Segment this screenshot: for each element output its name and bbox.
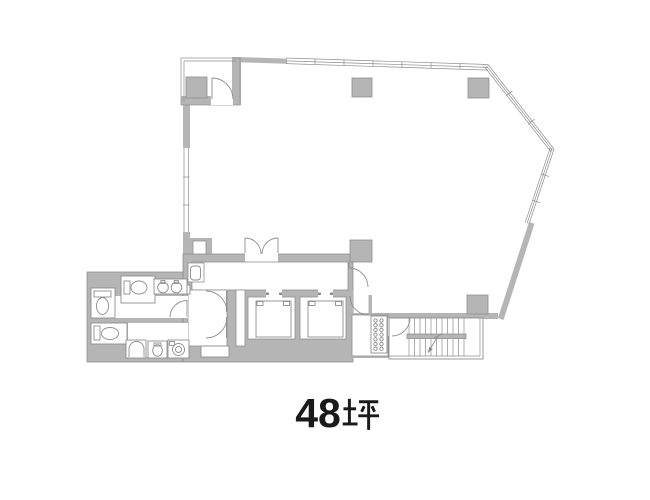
tsubo-unit-glyph [342,394,379,431]
northeast-window-band [485,65,554,152]
elevator-door-mark [330,293,333,296]
door-swing-arc [212,78,233,99]
elevator-2-cab [308,301,343,337]
column [350,240,372,262]
door-swing-arc [262,238,278,254]
west-window-band [183,148,189,232]
urinal-bay [148,341,167,358]
corridor-east-wall [369,295,373,315]
service-strip [236,290,245,346]
elevator-door-mark [318,293,321,296]
threshold-nook [201,346,229,357]
staircase [389,318,483,359]
column [468,78,489,98]
toilet-stall [121,276,155,303]
entrance-doorway [211,96,233,105]
north-window-band [286,58,488,70]
elevator-door-mark [279,293,282,296]
column [186,77,207,98]
main-room-double-door [245,238,278,254]
elevator-door-mark [266,293,269,296]
double-door-opening [245,252,278,263]
top-wall-segment [237,57,287,64]
column [352,78,372,97]
pipe-shaft [371,316,387,353]
elevator-hall [192,262,348,290]
southeast-angled-wall [498,222,535,320]
elevator-1-cab [256,301,291,337]
wall-niche [193,241,206,254]
east-window-band [525,148,554,224]
column [467,295,488,314]
area-label: 48 [12,392,650,434]
door-swing-arc [245,238,261,254]
floor-plan: 48 [0,0,650,500]
area-number: 48 [295,392,341,434]
